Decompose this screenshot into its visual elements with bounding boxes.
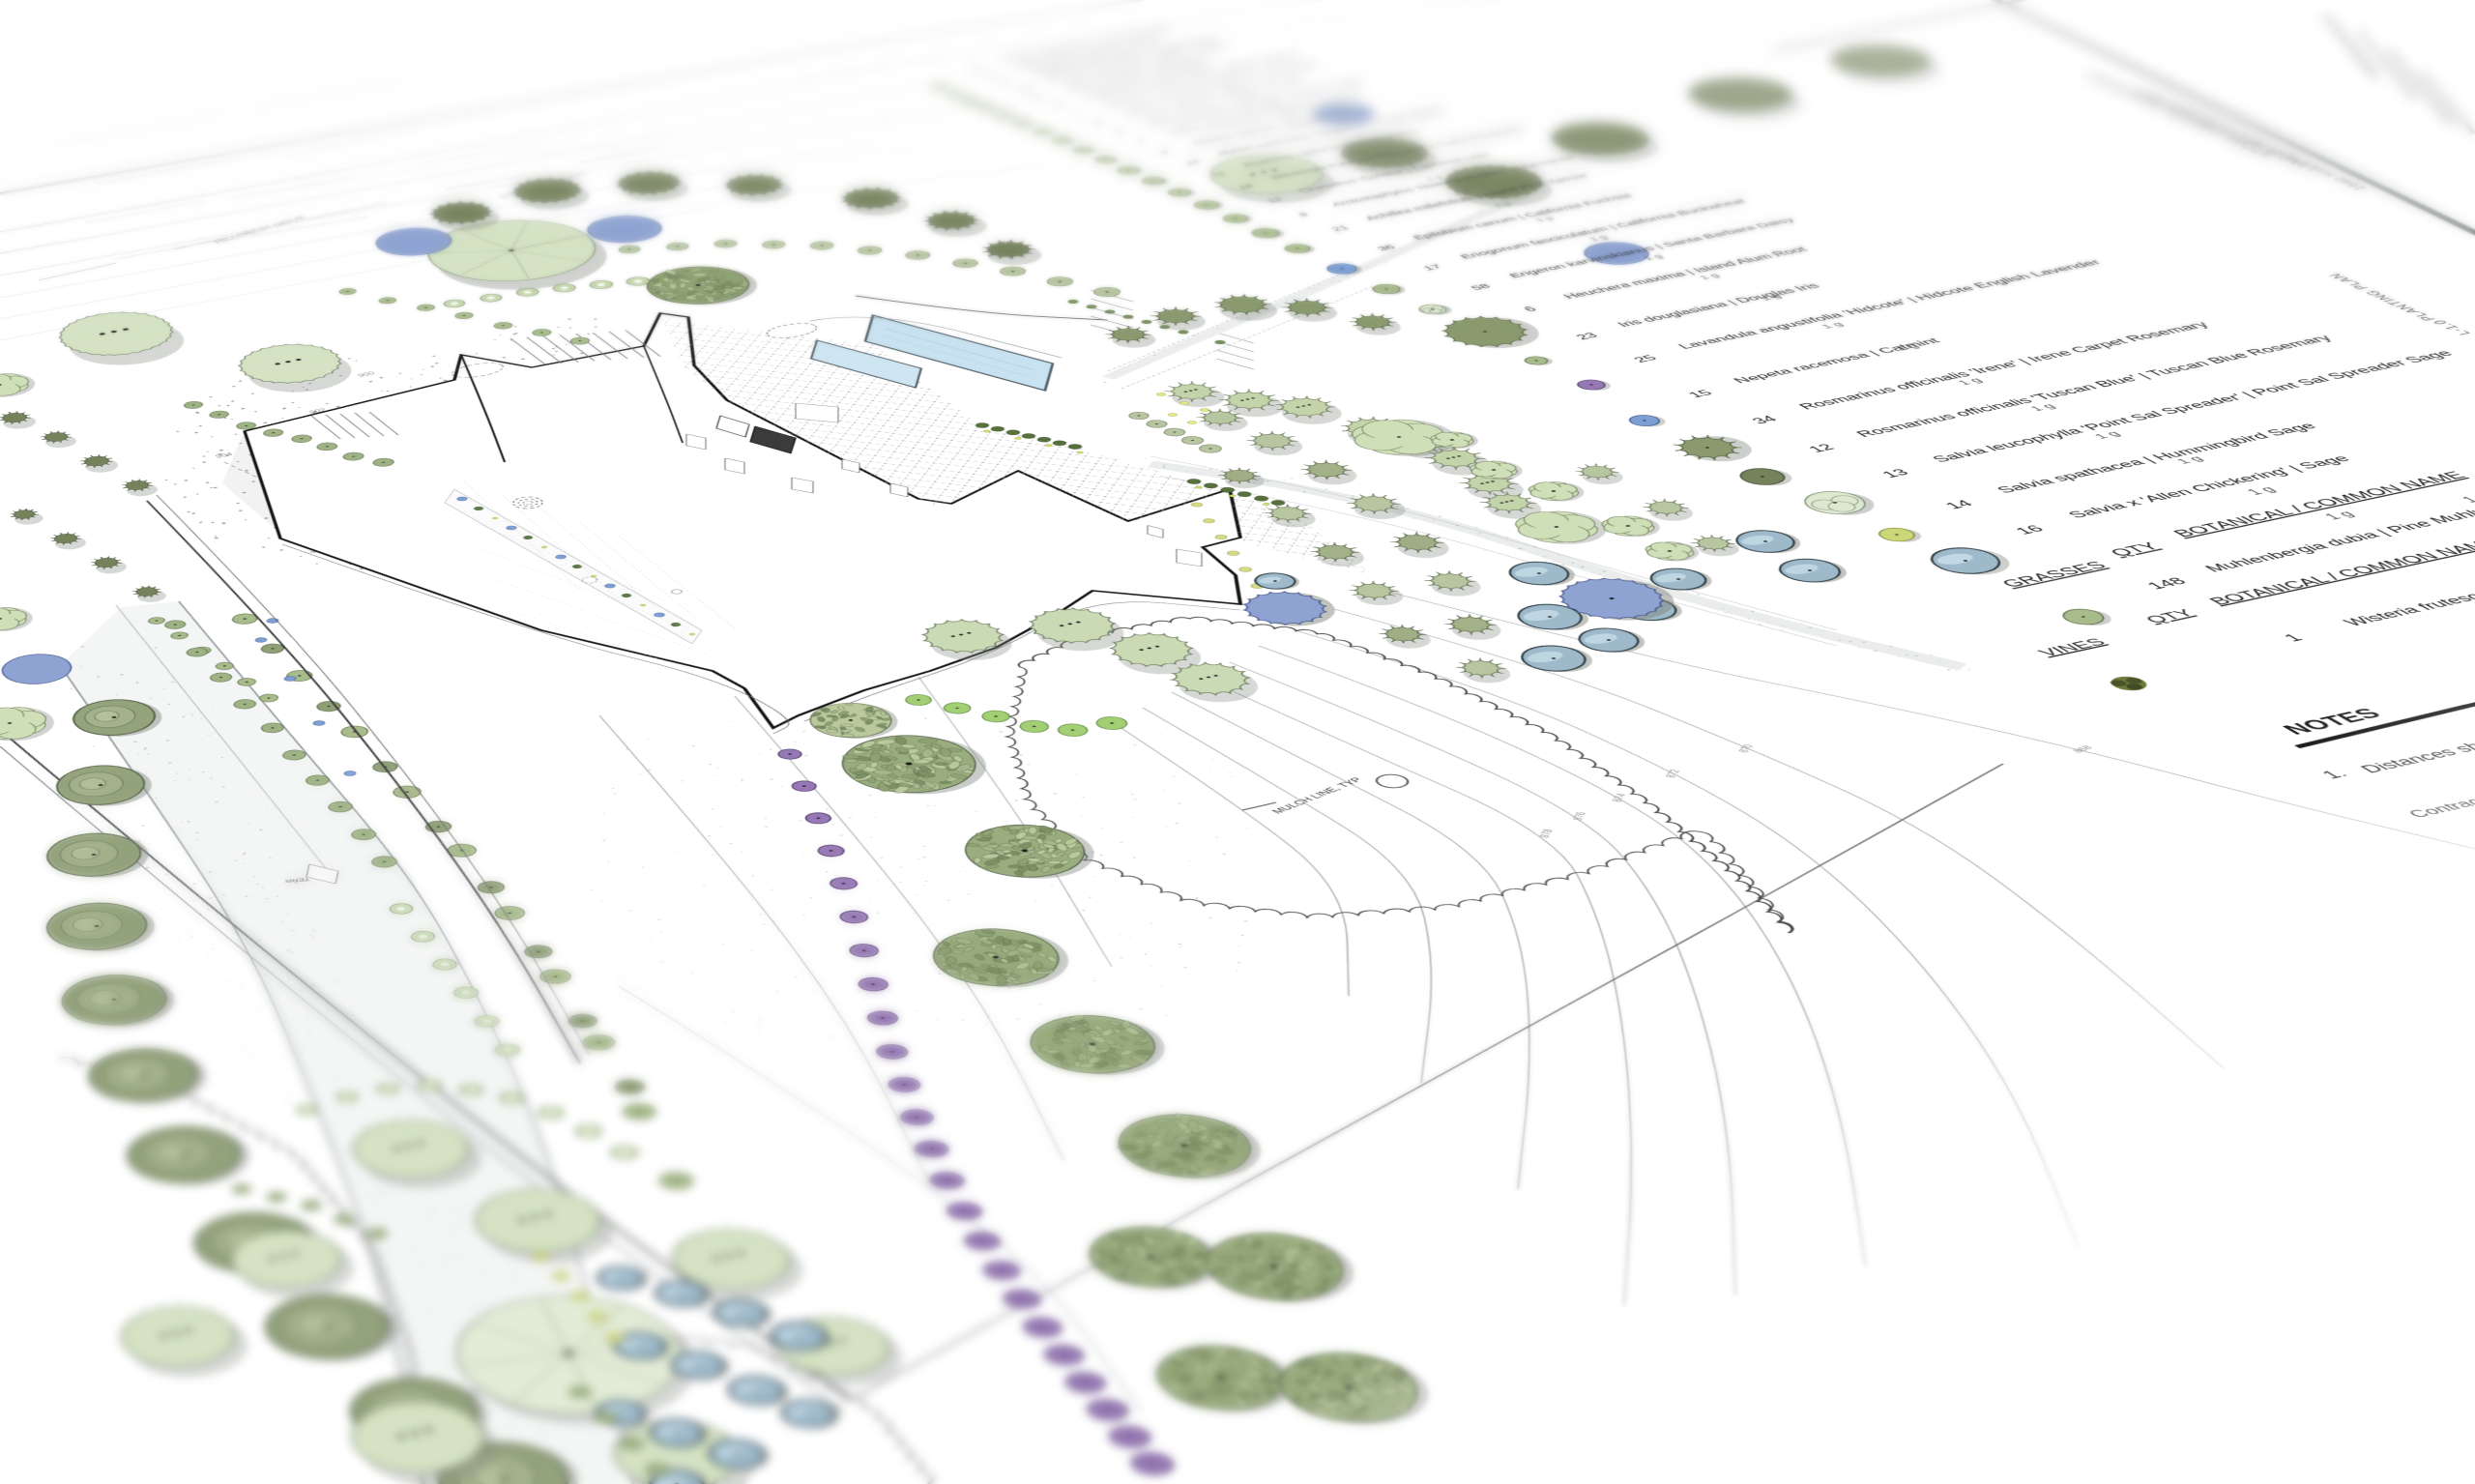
svg-text:1 g: 1 g bbox=[2092, 430, 2124, 441]
svg-text:2: 2 bbox=[1071, 111, 1085, 117]
svg-text:MULCH LINE, TYP: MULCH LINE, TYP bbox=[1268, 775, 1365, 815]
svg-text:1 g: 1 g bbox=[2244, 485, 2279, 497]
svg-text:16: 16 bbox=[2012, 523, 2049, 537]
svg-text:Erigeron karvinskianus | Santa: Erigeron karvinskianus | Santa Barbara D… bbox=[1506, 217, 1798, 279]
svg-text:1 g: 1 g bbox=[1587, 235, 1611, 243]
svg-text:QTY: QTY bbox=[2107, 541, 2165, 559]
svg-text:878: 878 bbox=[1537, 829, 1556, 839]
svg-text:14: 14 bbox=[1941, 498, 1978, 510]
svg-text:6: 6 bbox=[1000, 80, 1013, 85]
svg-text:26: 26 bbox=[1183, 160, 1204, 166]
svg-text:NOTES: NOTES bbox=[2277, 706, 2387, 738]
svg-text:PLANTING PLAN: PLANTING PLAN bbox=[2326, 272, 2440, 321]
svg-text:148: 148 bbox=[2142, 575, 2191, 592]
svg-text:34: 34 bbox=[1749, 415, 1781, 426]
svg-text:12: 12 bbox=[1805, 443, 1838, 454]
svg-text:21: 21 bbox=[1329, 224, 1353, 232]
svg-text:6: 6 bbox=[1521, 305, 1540, 312]
svg-text:HILLCREST DRIVE: HILLCREST DRIVE bbox=[212, 216, 309, 246]
svg-text:1 g: 1 g bbox=[2321, 509, 2359, 522]
svg-text:870: 870 bbox=[1734, 743, 1757, 754]
svg-text:1 g: 1 g bbox=[1259, 102, 1279, 108]
svg-text:1 g: 1 g bbox=[1278, 110, 1298, 117]
svg-text:13: 13 bbox=[1878, 467, 1913, 480]
svg-text:1640 HILLCREST DR, LOS ANGELES: 1640 HILLCREST DR, LOS ANGELES CA bbox=[2143, 93, 2371, 190]
svg-text:1.: 1. bbox=[2318, 768, 2352, 781]
svg-text:1 g: 1 g bbox=[2458, 492, 2475, 505]
svg-text:QTY: QTY bbox=[2141, 607, 2200, 626]
svg-text:17: 17 bbox=[1421, 264, 1445, 273]
svg-text:876: 876 bbox=[1570, 811, 1588, 822]
svg-text:VINES: VINES bbox=[2034, 636, 2111, 658]
svg-text:GRASSES: GRASSES bbox=[1999, 560, 2112, 590]
svg-text:904: 904 bbox=[214, 451, 234, 459]
svg-text:9: 9 bbox=[1296, 212, 1311, 218]
svg-text:8: 8 bbox=[1052, 102, 1065, 108]
svg-text:7: 7 bbox=[1135, 139, 1149, 145]
svg-text:9: 9 bbox=[969, 67, 982, 73]
svg-text:900: 900 bbox=[356, 370, 376, 377]
svg-text:1: 1 bbox=[2280, 632, 2307, 644]
svg-text:15: 15 bbox=[1685, 389, 1716, 400]
svg-text:3: 3 bbox=[1113, 130, 1126, 135]
svg-text:L-1.0: L-1.0 bbox=[2430, 319, 2475, 336]
svg-text:Contractor to verify on site.: Contractor to verify on site. bbox=[2402, 760, 2475, 820]
svg-text:4: 4 bbox=[984, 73, 998, 78]
svg-text:13: 13 bbox=[1016, 86, 1035, 93]
svg-text:1 g: 1 g bbox=[1820, 321, 1847, 330]
svg-text:5: 5 bbox=[1092, 120, 1105, 126]
svg-text:25: 25 bbox=[1630, 354, 1660, 364]
svg-text:58: 58 bbox=[1468, 282, 1494, 291]
svg-text:BOTANICAL / COMMON NAME: BOTANICAL / COMMON NAME bbox=[2206, 538, 2475, 608]
svg-text:23: 23 bbox=[1573, 332, 1601, 341]
svg-text:Rosmarinus officinalis 'Irene': Rosmarinus officinalis 'Irene' | Irene C… bbox=[1795, 320, 2213, 411]
svg-text:874: 874 bbox=[1611, 793, 1629, 803]
